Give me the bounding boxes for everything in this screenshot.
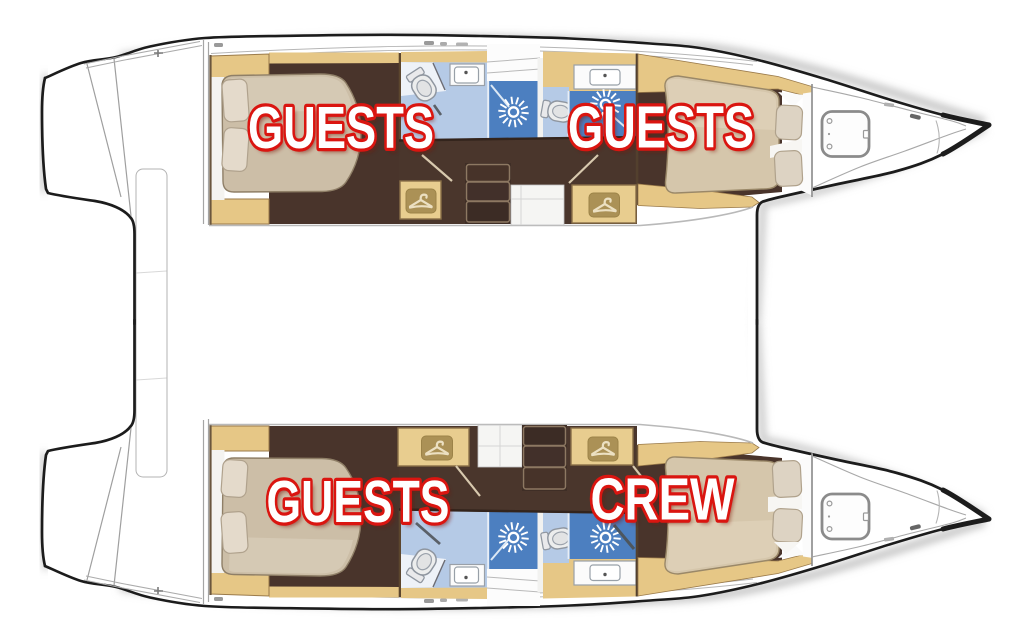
svg-text:CREW: CREW xyxy=(591,467,735,533)
svg-text:GUESTS: GUESTS xyxy=(267,469,450,535)
svg-text:GUESTS: GUESTS xyxy=(568,95,754,161)
svg-text:GUESTS: GUESTS xyxy=(248,95,434,161)
